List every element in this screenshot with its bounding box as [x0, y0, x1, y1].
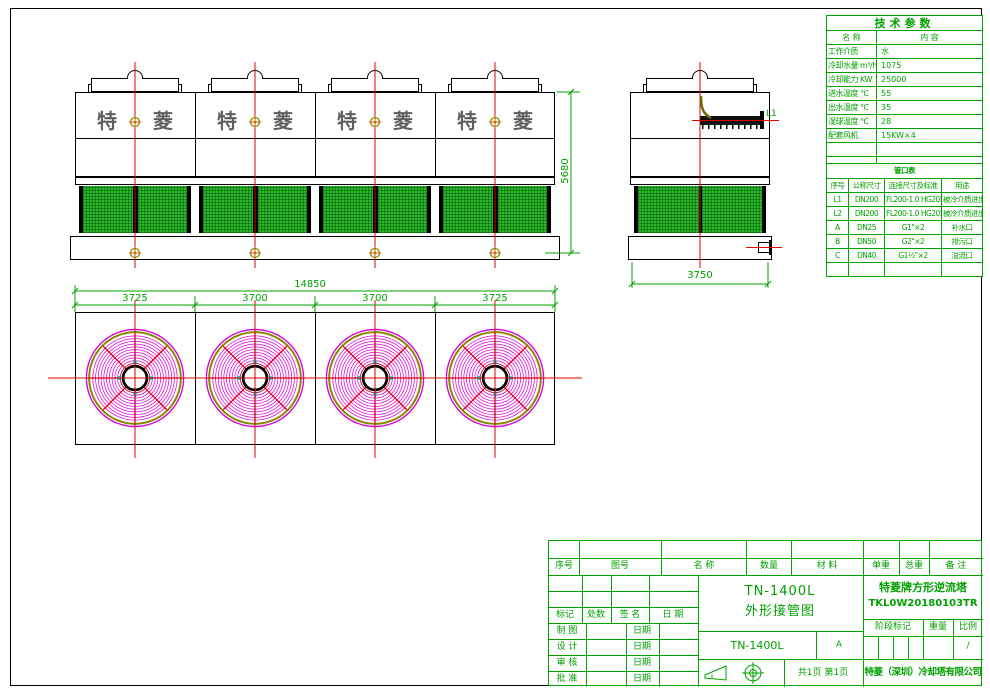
table-cell — [885, 263, 942, 277]
date-label: 日期 — [633, 659, 651, 668]
table-cell: DN40 — [849, 249, 885, 263]
title-block-line — [893, 636, 894, 659]
table-cell: 冷却能力 KW — [827, 73, 877, 87]
date-label: 日期 — [633, 675, 651, 684]
parts-header-cell: 材 料 — [817, 562, 838, 571]
table-cell: 被冷介质进出口 — [942, 207, 983, 221]
title-block-line — [698, 631, 863, 632]
table-row: ADN25G1"×2补水口 — [827, 221, 983, 235]
pipe-callout-label: L1 — [766, 110, 777, 119]
table-cell: 工作介质 — [827, 45, 877, 59]
title-block-line — [579, 541, 580, 575]
title-block-line — [659, 623, 660, 687]
table-cell — [849, 263, 885, 277]
tech-table-header-row: 名 称内 容 — [827, 31, 983, 45]
anchor-target-icons — [129, 116, 501, 259]
title-block-line — [586, 623, 587, 687]
page-info: 共1页 第1页 — [798, 669, 848, 678]
title-block-line — [899, 541, 900, 575]
table-cell: DN50 — [849, 235, 885, 249]
stage-header-cell: 阶段标记 — [875, 623, 911, 632]
title-block-line — [863, 541, 864, 687]
title-block-line — [549, 575, 983, 576]
dim-segment-label: 3700 — [345, 294, 405, 304]
dim-segment-label: 3725 — [465, 294, 525, 304]
table-cell: L1 — [827, 193, 849, 207]
table-cell: FL200-1.0 HG20593 — [885, 207, 942, 221]
column-header: 名 称 — [827, 31, 877, 45]
title-block-line — [863, 659, 983, 660]
title-block-line — [549, 655, 698, 656]
table-cell: 进水温度 ℃ — [827, 87, 877, 101]
table-cell: DN200 — [849, 193, 885, 207]
table-cell — [827, 143, 877, 157]
title-block-line — [549, 623, 698, 624]
table-row: 配套风机15KW×4 — [827, 129, 983, 143]
title-block-line — [816, 631, 817, 659]
dim-total-label: 14850 — [278, 280, 342, 290]
table-cell: 水 — [877, 45, 983, 59]
table-row — [827, 263, 983, 277]
table-row: 冷却水量 m³/h1075 — [827, 59, 983, 73]
parts-header-cell: 总重 — [905, 562, 923, 571]
table-row: 出水温度 ℃35 — [827, 101, 983, 115]
sign-row-label: 批 准 — [557, 675, 578, 684]
table-row: 进水温度 ℃55 — [827, 87, 983, 101]
table-cell: G2"×2 — [885, 235, 942, 249]
title-block-line — [549, 591, 698, 592]
dim-segment-label: 3700 — [225, 294, 285, 304]
cad-drawing-canvas: 特 菱 特 菱 特 菱 特 菱 — [0, 0, 990, 693]
projection-target-icon — [741, 661, 765, 685]
stage-header-cell: 重量 — [929, 623, 947, 632]
table-cell: 补水口 — [942, 221, 983, 235]
drawing-title-line2: 外形接管图 — [745, 605, 815, 618]
pipe-ports-table: 管口表 序号公称尺寸连接尺寸及标准用途 L1DN200FL200-1.0 HG2… — [826, 163, 983, 277]
title-block-line — [784, 659, 785, 687]
revision-letter: A — [836, 641, 842, 650]
table-cell: 15KW×4 — [877, 129, 983, 143]
table-cell: 1075 — [877, 59, 983, 73]
pipe-table-header-row: 序号公称尺寸连接尺寸及标准用途 — [827, 179, 983, 193]
table-row: CDN40G1½"×2溢流口 — [827, 249, 983, 263]
stage-header-cell: 比例 — [959, 623, 977, 632]
drawing-title-line1: TN-1400L — [745, 585, 816, 598]
title-block-line — [698, 659, 863, 660]
table-cell — [942, 263, 983, 277]
pipe-table-title: 管口表 — [827, 164, 983, 179]
title-block-line — [878, 636, 879, 659]
company-name: 特菱（深圳）冷却塔有限公司 — [864, 668, 981, 678]
table-cell: 28 — [877, 115, 983, 129]
drawing-number: TKL0W20180103TR — [868, 599, 977, 609]
tech-table-title: 技术参数 — [827, 16, 983, 31]
title-block-line — [698, 575, 699, 687]
date-label: 日期 — [633, 627, 651, 636]
table-cell: 35 — [877, 101, 983, 115]
title-block-line — [626, 623, 627, 687]
table-cell: DN25 — [849, 221, 885, 235]
scale-value: / — [966, 642, 969, 651]
table-cell: B — [827, 235, 849, 249]
column-header: 公称尺寸 — [849, 179, 885, 193]
table-cell: L2 — [827, 207, 849, 221]
rev-header-cell: 日 期 — [663, 611, 684, 620]
table-cell: 55 — [877, 87, 983, 101]
column-header: 序号 — [827, 179, 849, 193]
rev-header-cell: 处数 — [587, 611, 605, 620]
table-cell: A — [827, 221, 849, 235]
parts-header-cell: 数量 — [760, 562, 778, 571]
table-cell — [827, 263, 849, 277]
table-cell: 溢流口 — [942, 249, 983, 263]
title-block-line — [582, 575, 583, 623]
inlet-elbow — [701, 96, 711, 118]
parts-header-cell: 图号 — [611, 562, 629, 571]
table-cell: 排污口 — [942, 235, 983, 249]
table-cell: 25000 — [877, 73, 983, 87]
parts-header-cell: 名 称 — [694, 562, 715, 571]
table-row: 工作介质水 — [827, 45, 983, 59]
title-block-line — [661, 541, 662, 575]
table-cell — [877, 143, 983, 157]
title-block-line — [649, 575, 650, 623]
column-header: 内 容 — [877, 31, 983, 45]
parts-header-cell: 单重 — [872, 562, 890, 571]
dim-segment-label: 3725 — [105, 294, 165, 304]
table-cell: DN200 — [849, 207, 885, 221]
dimension-lines — [72, 89, 771, 312]
table-row — [827, 143, 983, 157]
title-block-line — [791, 541, 792, 575]
title-block-line — [549, 558, 983, 559]
column-header: 连接尺寸及标准 — [885, 179, 942, 193]
table-row: 湿球温度 ℃28 — [827, 115, 983, 129]
parts-header-cell: 备 注 — [946, 562, 967, 571]
title-block-line — [953, 619, 954, 659]
sign-row-label: 设 计 — [557, 643, 578, 652]
table-cell: FL200-1.0 HG20593 — [885, 193, 942, 207]
table-cell: 被冷介质进出口 — [942, 193, 983, 207]
parts-header-cell: 序号 — [555, 562, 573, 571]
dim-width-label: 3750 — [670, 271, 730, 281]
table-row: L2DN200FL200-1.0 HG20593被冷介质进出口 — [827, 207, 983, 221]
title-block: 序号 图号 名 称 数量 材 料 单重 总重 备 注 标记 处数 签 名 日 期… — [548, 540, 982, 686]
product-name: 特菱牌方形逆流塔 — [879, 582, 967, 593]
table-row: BDN50G2"×2排污口 — [827, 235, 983, 249]
title-block-line — [549, 639, 698, 640]
sign-row-label: 制 图 — [557, 627, 578, 636]
table-cell: 配套风机 — [827, 129, 877, 143]
title-block-line — [611, 575, 612, 623]
column-header: 用途 — [942, 179, 983, 193]
table-row: L1DN200FL200-1.0 HG20593被冷介质进出口 — [827, 193, 983, 207]
sign-row-label: 审 核 — [557, 659, 578, 668]
tech-params-table: 技术参数 名 称内 容 工作介质水冷却水量 m³/h1075冷却能力 KW250… — [826, 15, 983, 171]
title-block-line — [929, 541, 930, 575]
title-block-line — [549, 671, 698, 672]
table-cell: C — [827, 249, 849, 263]
table-cell: 冷却水量 m³/h — [827, 59, 877, 73]
table-cell: 湿球温度 ℃ — [827, 115, 877, 129]
title-block-line — [746, 541, 747, 575]
model-number: TN-1400L — [730, 640, 783, 651]
title-block-line — [908, 636, 909, 659]
table-row: 冷却能力 KW25000 — [827, 73, 983, 87]
title-block-line — [549, 607, 698, 608]
table-cell: 出水温度 ℃ — [827, 101, 877, 115]
projection-frustum-icon — [702, 663, 736, 683]
dim-height-label: 5680 — [561, 151, 571, 191]
rev-header-cell: 标记 — [556, 611, 574, 620]
table-cell: G1½"×2 — [885, 249, 942, 263]
rev-header-cell: 签 名 — [620, 611, 641, 620]
title-block-line — [923, 619, 924, 659]
date-label: 日期 — [633, 643, 651, 652]
table-cell: G1"×2 — [885, 221, 942, 235]
